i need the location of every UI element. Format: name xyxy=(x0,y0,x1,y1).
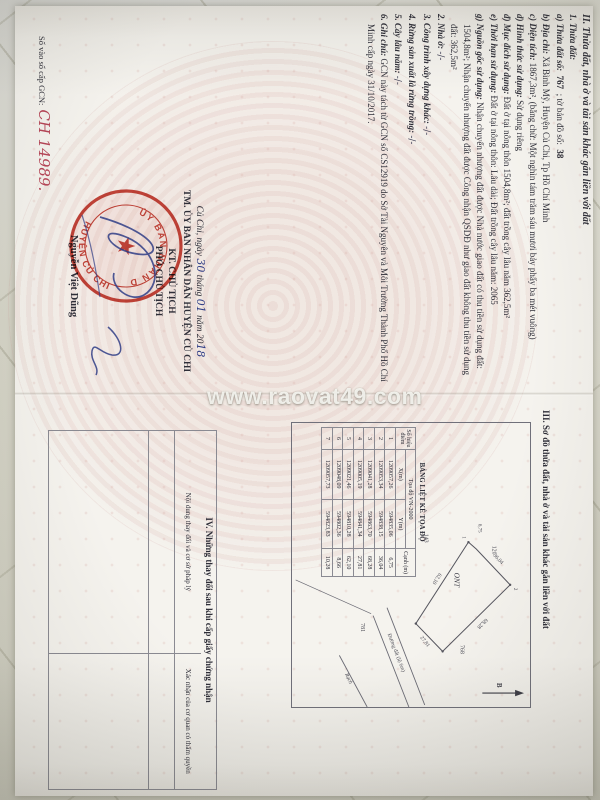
handwritten-month: 01 xyxy=(194,299,207,313)
line-use-origin: g) Nguồn gốc sử dụng: Nhận chuyển nhượng… xyxy=(447,14,487,390)
plot-use-label: ONT xyxy=(453,573,462,588)
edge-length-6828: 68,28 xyxy=(475,617,488,630)
line-forest: 4. Rừng sản xuất là rừng trồng: -/- xyxy=(404,14,418,390)
changes-col1-header: Nội dung thay đổi và cơ sở pháp lý xyxy=(175,431,201,654)
edge-length-675: 6,75 xyxy=(476,524,481,533)
line-parcel-number: a) Thửa đất số: 767 ; tờ bản đồ số: 38 xyxy=(552,14,565,390)
corner-point-2: 2 xyxy=(512,588,517,591)
section-4-changes: IV. Những thay đổi sau khi cấp giấy chứn… xyxy=(49,430,218,790)
col-header-y: Y(m) xyxy=(396,499,406,549)
line-other-construction: 3. Công trình xây dựng khác: -/- xyxy=(418,14,432,390)
coord-row: 51209021,46594810,2862,10 xyxy=(343,428,354,577)
registry-number-line: Số vào sổ cấp GCN:CH 14989. xyxy=(35,36,53,191)
col-header-x: X(m) xyxy=(396,449,406,499)
road-line-1 xyxy=(387,608,425,705)
changes-col2-header: Xác nhận của cơ quan có thẩm quyền xyxy=(175,653,201,789)
handwritten-year: 18 xyxy=(194,343,207,357)
neighbor-parcel-781: 781 xyxy=(359,623,365,632)
corner-point-1: 1 xyxy=(460,536,465,539)
col-header-edge: Cạnh (m) xyxy=(396,549,416,577)
col-header-group: Tọa độ VN-2000 xyxy=(406,449,416,548)
signing-place-date: Củ Chi, ngày 30 tháng 01 năm 2018 xyxy=(194,174,207,389)
neighbor-parcel-768: 768 xyxy=(458,645,464,654)
line-perennial-trees: 5. Cây lâu năm: -/- xyxy=(390,14,404,390)
registry-handwritten-number: CH 14989. xyxy=(35,109,53,191)
coordinate-table: Số hiệu điểm Tọa độ VN-2000 Cạnh (m) X(m… xyxy=(322,427,417,577)
line-notes: 6. Ghi chú: GCN này tách từ GCN số CS129… xyxy=(364,14,390,390)
coord-row: 21209053,34594838,1536,04 xyxy=(375,428,386,577)
road-label: Đường đất (lộ 6m) xyxy=(386,633,407,674)
line-use-term: e) Thời hạn sử dụng: Đất ở tại nông thôn… xyxy=(486,14,499,390)
line-use-form: d) Hình thức sử dụng: Sử dụng riêng xyxy=(513,14,526,390)
north-arrow-icon: B xyxy=(482,683,524,696)
registry-label: Số vào sổ cấp GCN: xyxy=(37,36,47,105)
line-house: 2. Nhà ở: -/- xyxy=(433,14,447,390)
boundary-line xyxy=(296,580,371,614)
photo-of-land-certificate: { "photo": { "watermark": "www.raovat49.… xyxy=(0,0,600,800)
coord-row: 11209057,26594835,066,75 xyxy=(385,428,396,577)
edge-length-3604: 36,04 xyxy=(492,553,505,566)
section-4-heading: IV. Những thay đổi sau khi cấp giấy chứn… xyxy=(201,430,217,790)
section-2-land-details: II. Thửa đất, nhà ở và tài sản khác gắn … xyxy=(364,14,592,390)
canal-label: Rạch xyxy=(343,672,354,686)
site-watermark: www.raovat49.com xyxy=(207,383,423,410)
north-label: B xyxy=(495,683,503,688)
subsection-1-thua-dat: 1. Thửa đất: xyxy=(566,14,579,390)
col-header-point: Số hiệu điểm xyxy=(396,428,416,450)
coord-row: 31209041,28594863,7068,28 xyxy=(364,428,375,577)
changes-empty-row xyxy=(49,431,149,790)
plot-diagram-box: ONT 120 143 768 781 6,75 36,04 68,28 27,… xyxy=(291,422,531,708)
coord-row: 61209048,09594802,368,66 xyxy=(333,428,344,577)
line-address: b) Địa chỉ: Xã Bình Mỹ, Huyện Củ Chi, Tp… xyxy=(539,14,552,390)
handwritten-day: 30 xyxy=(194,258,207,272)
road-line-2 xyxy=(373,616,409,707)
edge-length-6210: 62,10 xyxy=(431,572,443,586)
section-3-heading: III. Sơ đồ thửa đất, nhà ở và tài sản kh… xyxy=(541,410,551,670)
line-use-purpose: đ) Mục đích sử dụng: Đất ở tại nông thôn… xyxy=(500,14,513,390)
coordinate-table-title: BẢNG LIỆT KÊ TỌA ĐỘ xyxy=(418,427,426,577)
coord-row: 41209005,19594841,3427,81 xyxy=(354,428,365,577)
changes-table: Nội dung thay đổi và cơ sở pháp lý Xác n… xyxy=(49,430,202,790)
changes-empty-row xyxy=(149,431,175,790)
section-2-heading: II. Thửa đất, nhà ở và tài sản khác gắn … xyxy=(579,14,592,390)
signature-ink-strokes xyxy=(74,209,170,381)
coord-row: 71209057,73594823,8310,28 xyxy=(322,428,333,577)
line-area: c) Diện tích: 1867,3m², (bằng chữ: Một n… xyxy=(526,14,539,390)
